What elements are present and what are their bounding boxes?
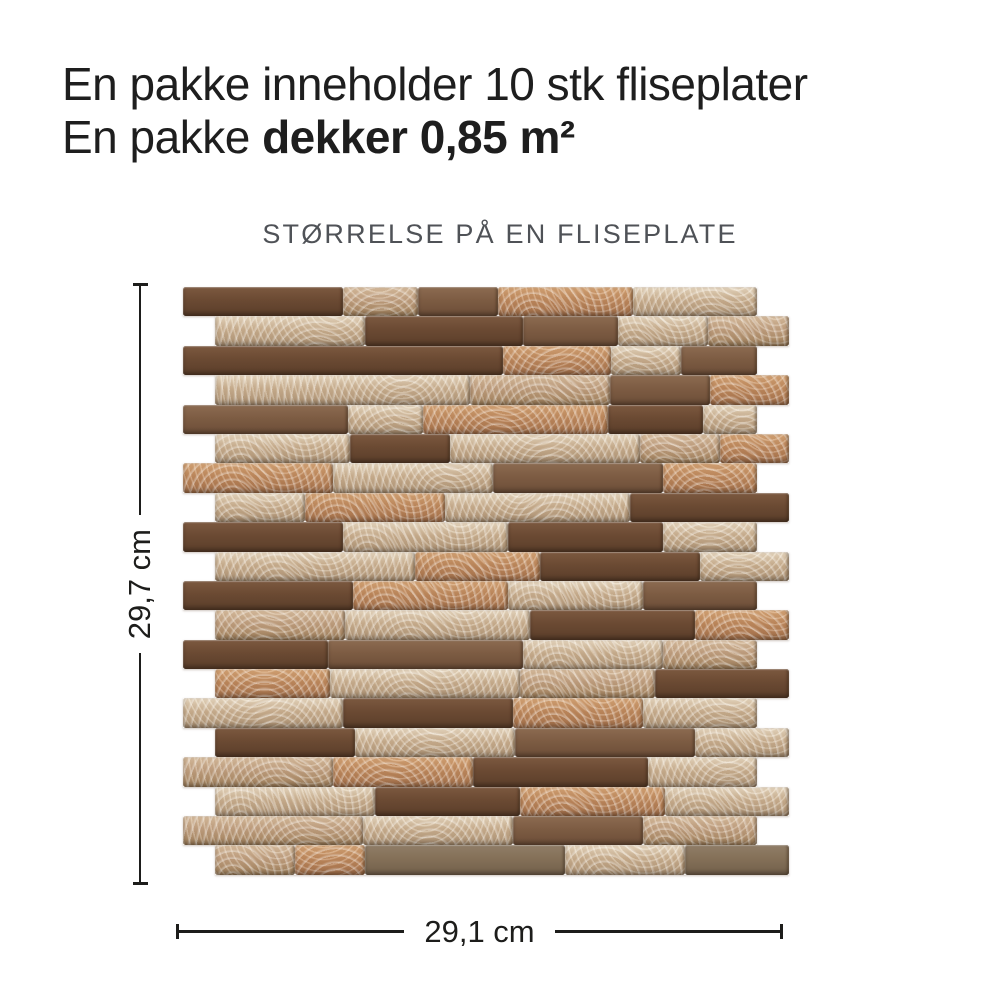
pack-info-text: En pakke inneholder 10 stk fliseplater E… <box>62 58 808 164</box>
pack-info-line2-regular: En pakke <box>62 111 262 163</box>
tile-row <box>183 581 757 610</box>
tile-segment-copper <box>305 493 445 522</box>
tile-row <box>183 816 757 845</box>
section-title: STØRRELSE PÅ EN FLISEPLATE <box>0 219 1000 250</box>
dimension-line-left <box>179 930 404 933</box>
dimension-cap-bottom <box>133 882 148 885</box>
tile-segment-silver <box>695 728 789 757</box>
tile-segment-brown <box>515 728 695 757</box>
tile-row <box>183 698 757 727</box>
tile-segment-copper <box>423 405 608 434</box>
tile-segment-silver <box>215 787 375 816</box>
tile-segment-silver <box>363 816 513 845</box>
tile-row <box>215 493 789 522</box>
tile-segment-brown <box>610 375 710 404</box>
tile-segment-silver <box>450 434 640 463</box>
tile-segment-copper <box>720 434 789 463</box>
tile-segment-silver <box>508 581 643 610</box>
tile-segment-silver <box>643 698 757 727</box>
tile-segment-tan <box>215 610 345 639</box>
tile-segment-dark <box>473 757 648 786</box>
tile-segment-dark <box>608 405 703 434</box>
tile-segment-dark <box>183 346 503 375</box>
tile-segment-silver <box>215 493 305 522</box>
tile-segment-silver <box>215 434 350 463</box>
tile-segment-silver <box>215 375 470 404</box>
tile-segment-silver <box>333 463 493 492</box>
dimension-cap-right <box>780 924 783 939</box>
tile-segment-dark <box>183 640 328 669</box>
tile-segment-dark <box>350 434 450 463</box>
tile-segment-dark <box>183 287 343 316</box>
tile-segment-dark <box>215 728 355 757</box>
tile-segment-brown <box>183 405 348 434</box>
tile-row <box>215 552 789 581</box>
tile-segment-brown <box>513 816 643 845</box>
tile-segment-copper <box>295 845 365 874</box>
tile-row <box>183 640 757 669</box>
tile-segment-silver <box>183 698 343 727</box>
tile-segment-silver <box>215 552 415 581</box>
tile-segment-brown <box>493 463 663 492</box>
tile-segment-tan <box>643 816 757 845</box>
tile-segment-silver <box>700 552 789 581</box>
tile-segment-graybrown <box>365 845 565 874</box>
tile-segment-copper <box>520 787 665 816</box>
tile-segment-silver <box>633 287 757 316</box>
tile-row <box>215 787 789 816</box>
tile-segment-copper <box>663 463 757 492</box>
tile-segment-silver <box>445 493 630 522</box>
tile-segment-tan <box>520 669 655 698</box>
tile-row <box>215 316 789 345</box>
tile-segment-tan <box>343 287 418 316</box>
tile-segment-copper <box>353 581 508 610</box>
tile-segment-copper <box>215 669 330 698</box>
tile-segment-silver <box>665 787 789 816</box>
tile-row <box>183 346 757 375</box>
tile-segment-tan <box>663 640 757 669</box>
tile-segment-copper <box>710 375 789 404</box>
tile-segment-silver <box>611 346 681 375</box>
tile-row <box>215 434 789 463</box>
tile-segment-silver <box>663 522 757 551</box>
tile-row <box>215 610 789 639</box>
tile-row <box>215 845 789 874</box>
tile-row <box>183 463 757 492</box>
tile-segment-silver <box>330 669 520 698</box>
tile-segment-dark <box>655 669 789 698</box>
tile-segment-dark <box>183 581 353 610</box>
tile-row <box>183 405 757 434</box>
tile-segment-tan <box>183 816 363 845</box>
tile-segment-dark <box>375 787 520 816</box>
tile-segment-dark <box>343 698 513 727</box>
tile-segment-silver <box>523 640 663 669</box>
tile-segment-copper <box>333 757 473 786</box>
tile-segment-tan <box>215 845 295 874</box>
tile-row <box>215 669 789 698</box>
tile-segment-copper <box>498 287 633 316</box>
tile-segment-graybrown <box>685 845 789 874</box>
tile-segment-silver <box>618 316 708 345</box>
tile-segment-dark <box>530 610 695 639</box>
dimension-line-lower <box>139 653 142 882</box>
tile-segment-silver <box>348 405 423 434</box>
tile-segment-brown <box>681 346 757 375</box>
tile-row <box>215 375 789 404</box>
tile-segment-dark <box>630 493 789 522</box>
height-dimension: 29,7 cm <box>125 283 155 885</box>
tile-segment-silver <box>703 405 757 434</box>
page: En pakke inneholder 10 stk fliseplater E… <box>0 0 1000 1000</box>
tile-segment-brown <box>523 316 618 345</box>
tile-segment-silver <box>345 610 530 639</box>
dimension-line-upper <box>139 286 142 515</box>
tile-segment-silver <box>215 316 365 345</box>
pack-info-line1: En pakke inneholder 10 stk fliseplater <box>62 58 808 111</box>
tile-segment-copper <box>183 463 333 492</box>
tile-segment-dark <box>540 552 700 581</box>
tile-segment-tan <box>183 757 333 786</box>
height-label: 29,7 cm <box>122 529 158 639</box>
tile-photo <box>183 287 791 875</box>
tile-row <box>215 728 789 757</box>
tile-segment-brown <box>643 581 757 610</box>
dimension-line-right <box>555 930 780 933</box>
tile-segment-tan <box>470 375 610 404</box>
tile-segment-tan <box>640 434 720 463</box>
tile-segment-tan <box>708 316 789 345</box>
tile-row <box>183 757 757 786</box>
width-label: 29,1 cm <box>404 914 554 950</box>
tile-segment-brown <box>328 640 523 669</box>
tile-segment-brown <box>418 287 498 316</box>
tile-segment-silver <box>565 845 685 874</box>
width-dimension: 29,1 cm <box>176 923 783 940</box>
tile-segment-copper <box>503 346 611 375</box>
tile-segment-copper <box>415 552 540 581</box>
tile-segment-dark <box>508 522 663 551</box>
pack-info-line2-bold: dekker 0,85 m² <box>262 111 575 163</box>
tile-segment-silver <box>648 757 757 786</box>
tile-segment-copper <box>695 610 789 639</box>
tile-segment-dark <box>183 522 343 551</box>
tile-segment-dark <box>365 316 523 345</box>
tile-segment-silver <box>355 728 515 757</box>
tile-segment-copper <box>513 698 643 727</box>
tile-row <box>183 287 757 316</box>
tile-segment-silver <box>343 522 508 551</box>
tile-row <box>183 522 757 551</box>
pack-info-line2: En pakke dekker 0,85 m² <box>62 111 808 164</box>
